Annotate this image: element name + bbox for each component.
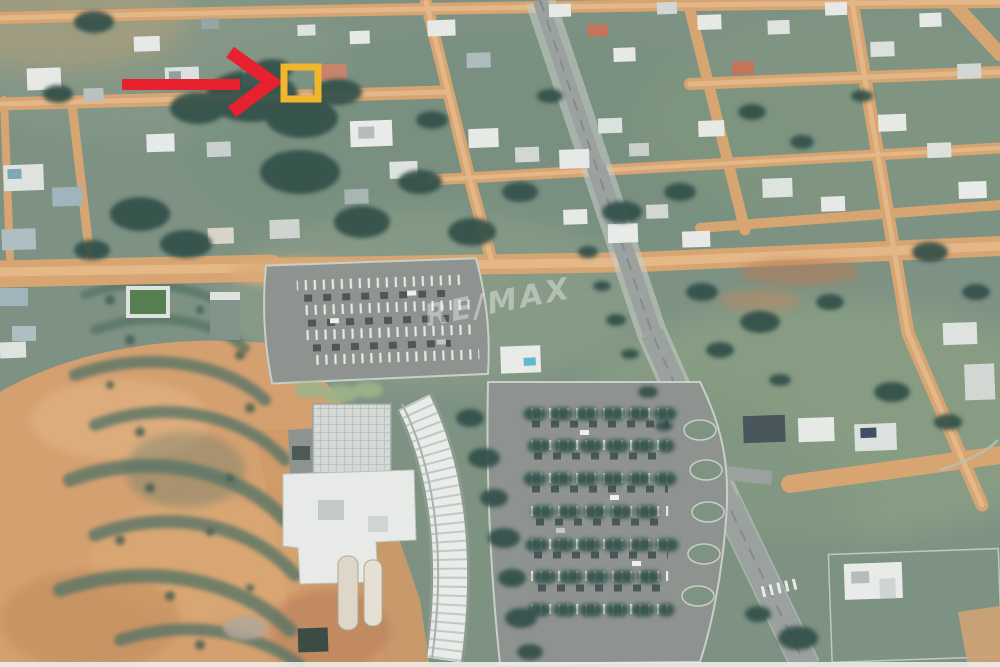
bottom-frame-strip: [0, 662, 1000, 667]
satellite-imagery: RE/MAX: [0, 0, 1000, 667]
aerial-map-image: RE/MAX: [0, 0, 1000, 667]
arrow-shaft: [122, 79, 240, 90]
